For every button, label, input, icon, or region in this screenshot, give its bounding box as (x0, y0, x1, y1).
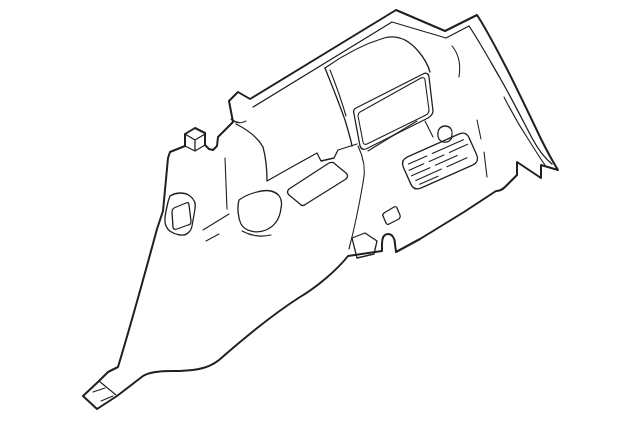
small-slot (383, 207, 401, 225)
hump-left-inner (330, 70, 346, 116)
pillar-top-hook-crease (452, 46, 460, 77)
pillar-crease-vertical (225, 158, 227, 209)
roof-inner-edge (253, 22, 552, 164)
pillar-bulge-edge (236, 124, 357, 181)
pillar-crease-b (206, 234, 219, 241)
clip-boss-edges (185, 134, 205, 151)
quarter-trim-panel-drawing (0, 0, 640, 423)
window-recess-inner (358, 78, 429, 145)
belt-opening-inner (172, 203, 191, 230)
parts-illustration-canvas (0, 0, 640, 423)
pillar-crease-a (203, 214, 229, 230)
foot-fold-line (99, 381, 116, 395)
panel-outline (83, 10, 558, 409)
pillar-inner-edge (504, 97, 545, 165)
shelf-slot (288, 162, 348, 205)
hump-top-edge (325, 37, 430, 72)
hump-left-edge (325, 68, 352, 146)
ridge-line (368, 121, 417, 151)
window-recess-outer (354, 73, 433, 149)
grille-side-crease (477, 120, 487, 177)
pocket-recess (238, 191, 282, 232)
oval-tick-line (425, 121, 433, 137)
